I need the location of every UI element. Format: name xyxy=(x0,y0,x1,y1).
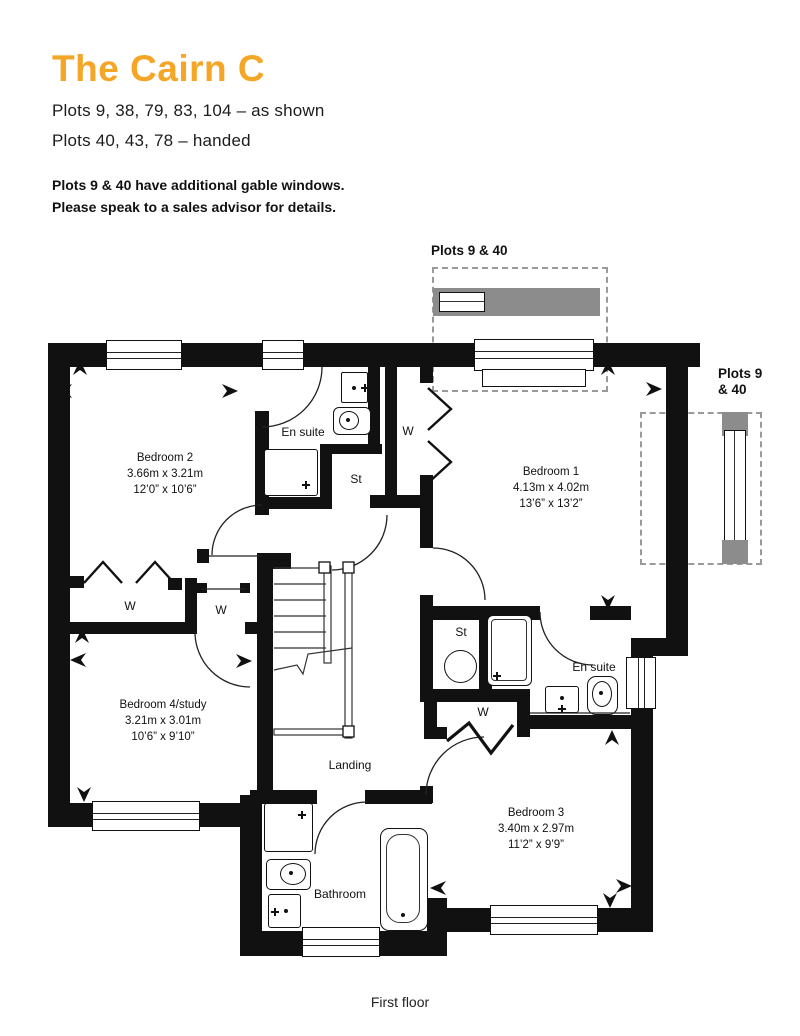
staircase xyxy=(274,562,354,738)
bathtub-basin-icon xyxy=(386,834,420,923)
wall-stair-spine-stub xyxy=(257,553,291,569)
gable-window-right-bottom xyxy=(722,540,748,564)
gable-callout-right-line2: & 40 xyxy=(718,382,762,398)
gable-window-right-glass xyxy=(724,430,746,544)
room-label-bedroom4: Bedroom 4/study 3.21m x 3.01m 10’6” x 9’… xyxy=(120,697,207,745)
sink-icon xyxy=(268,894,301,928)
wall-closet1-stub-right xyxy=(168,578,182,590)
tap-icon xyxy=(271,908,279,916)
wall-bedroom4-door-post xyxy=(245,622,257,634)
bifold-door-icon xyxy=(428,388,451,430)
window-bedroom1 xyxy=(474,339,594,371)
wall-bathroom-top-east xyxy=(365,790,432,804)
shower-drain-icon xyxy=(298,811,306,819)
plots-as-shown: Plots 9, 38, 79, 83, 104 – as shown xyxy=(52,101,325,121)
bathtub-icon xyxy=(380,828,428,931)
sink-icon xyxy=(545,686,579,713)
wall-closet2-post-left xyxy=(197,583,207,593)
tap-icon xyxy=(558,705,566,713)
shower-icon xyxy=(487,615,532,686)
room-dims-imperial: 13’6” x 13’2” xyxy=(513,496,589,512)
door-arc-ensuite-top xyxy=(262,367,322,427)
window-bedroom1-sill xyxy=(482,369,586,387)
toilet-drain-icon xyxy=(599,691,603,695)
room-label-ensuite-top: En suite xyxy=(281,425,324,439)
window-ensuite-top xyxy=(262,340,304,370)
gable-window-top-glass xyxy=(439,292,485,312)
wall-closet1-stub-left xyxy=(70,576,84,588)
wall-store-top-left xyxy=(320,452,332,509)
room-label-bedroom3: Bedroom 3 3.40m x 2.97m 11’2” x 9’9” xyxy=(498,805,574,853)
door-arc-bedroom3 xyxy=(426,737,484,795)
arrow-right-icon xyxy=(616,879,632,893)
toilet-icon xyxy=(266,859,311,890)
sink-drain-icon xyxy=(352,386,356,390)
shower-icon xyxy=(264,449,318,496)
room-label-wardrobe-left: W xyxy=(124,599,135,613)
tap-icon xyxy=(361,384,369,392)
wall-closet1-right xyxy=(185,578,197,634)
door-arc-bathroom xyxy=(315,802,367,854)
newel-post-icon xyxy=(319,562,330,573)
room-label-wardrobe-bottom: W xyxy=(477,705,488,719)
room-dims-metric: 3.21m x 3.01m xyxy=(120,713,207,729)
stair-break-line xyxy=(274,648,352,674)
arrow-right-icon xyxy=(236,654,252,668)
toilet-icon xyxy=(587,676,618,715)
toilet-drain-icon xyxy=(346,418,350,422)
room-dims-metric: 3.40m x 2.97m xyxy=(498,821,574,837)
wall-wardrobe-bottom-jamb-l xyxy=(425,727,447,739)
toilet-icon xyxy=(333,407,371,435)
room-name: Bedroom 3 xyxy=(498,805,574,821)
wall-wardrobe-top-jamb-b xyxy=(420,475,433,497)
arrow-right-icon xyxy=(222,384,238,398)
window-bedroom3 xyxy=(490,905,598,935)
sink-drain-icon xyxy=(560,696,564,700)
wall-store-bottom-left xyxy=(420,606,433,701)
floor-caption: First floor xyxy=(371,994,429,1010)
gable-note-line2: Please speak to a sales advisor for deta… xyxy=(52,199,336,215)
gable-callout-top-label: Plots 9 & 40 xyxy=(431,243,508,259)
wall-exterior-left xyxy=(48,343,70,827)
room-label-landing: Landing xyxy=(329,758,372,772)
room-label-wardrobe-top: W xyxy=(402,424,413,438)
room-name: Bedroom 4/study xyxy=(120,697,207,713)
room-dims-imperial: 12’0” x 10’6” xyxy=(127,482,203,498)
shower-drain-icon xyxy=(302,481,310,489)
tank-icon xyxy=(444,650,477,683)
room-label-bathroom: Bathroom xyxy=(314,887,366,901)
wall-bedroom2-door-post xyxy=(197,549,209,563)
window-bedroom4 xyxy=(92,801,200,831)
toilet-bowl-icon xyxy=(280,863,306,885)
arrow-right-icon xyxy=(646,382,662,396)
wall-bedroom1-landing-upper xyxy=(420,495,433,548)
bifold-door-icon xyxy=(84,562,122,583)
arrow-down-icon xyxy=(77,787,91,802)
wall-closets-bottom xyxy=(48,622,197,634)
gable-callout-right-line1: Plots 9 xyxy=(718,366,762,382)
room-label-wardrobe-mid: W xyxy=(215,603,226,617)
door-arc-ensuite-bottom xyxy=(540,612,593,665)
room-dims-metric: 3.66m x 3.21m xyxy=(127,466,203,482)
plots-handed: Plots 40, 43, 78 – handed xyxy=(52,131,251,151)
newel-post-icon xyxy=(343,562,354,573)
arrow-up-icon xyxy=(605,730,619,745)
arrow-left-icon xyxy=(430,881,446,895)
bifold-door-icon xyxy=(447,723,513,753)
newel-post-icon xyxy=(343,726,354,737)
room-name: Bedroom 2 xyxy=(127,450,203,466)
gable-note-line1: Plots 9 & 40 have additional gable windo… xyxy=(52,177,345,193)
sink-drain-icon xyxy=(284,909,288,913)
arrow-down-icon xyxy=(603,893,617,908)
gable-callout-right-label: Plots 9 & 40 xyxy=(718,366,762,398)
room-label-ensuite-bottom: En suite xyxy=(572,660,615,674)
window-bathroom xyxy=(302,927,380,957)
wall-wardrobe-bottom-right xyxy=(517,689,530,737)
page-title: The Cairn C xyxy=(52,48,265,90)
room-dims-metric: 4.13m x 4.02m xyxy=(513,480,589,496)
room-label-bedroom1: Bedroom 1 4.13m x 4.02m 13’6” x 13’2” xyxy=(513,464,589,512)
room-name: Bedroom 1 xyxy=(513,464,589,480)
shower-icon xyxy=(264,803,313,852)
wall-exterior-right-upper xyxy=(666,343,688,643)
room-label-store-top: St xyxy=(350,472,361,486)
arrow-left-icon xyxy=(70,653,86,667)
sink-icon xyxy=(341,372,368,403)
floorplan-page: The Cairn C Plots 9, 38, 79, 83, 104 – a… xyxy=(0,0,800,1036)
wall-wardrobe-top-jamb-a xyxy=(420,367,433,383)
window-ensuite-bottom xyxy=(626,657,656,709)
shower-drain-icon xyxy=(493,672,501,680)
toilet-drain-icon xyxy=(289,871,293,875)
door-arc-bedroom1 xyxy=(433,548,485,600)
wall-ensuite-bottom-bottom xyxy=(530,715,631,729)
wall-closet2-post-right xyxy=(240,583,250,593)
door-arc-store-top xyxy=(332,515,387,570)
wall-stair-spine xyxy=(257,553,273,803)
room-dims-imperial: 11’2” x 9’9” xyxy=(498,837,574,853)
window-bedroom2 xyxy=(106,340,182,370)
door-arc-bedroom4 xyxy=(195,632,250,687)
bathtub-drain-icon xyxy=(401,913,405,917)
room-label-bedroom2: Bedroom 2 3.66m x 3.21m 12’0” x 10’6” xyxy=(127,450,203,498)
wall-ensuite-bottom-top xyxy=(590,606,631,620)
room-dims-imperial: 10’6” x 9’10” xyxy=(120,729,207,745)
wall-wardrobe-top-left xyxy=(385,367,397,498)
room-label-store-bottom: St xyxy=(455,625,466,639)
